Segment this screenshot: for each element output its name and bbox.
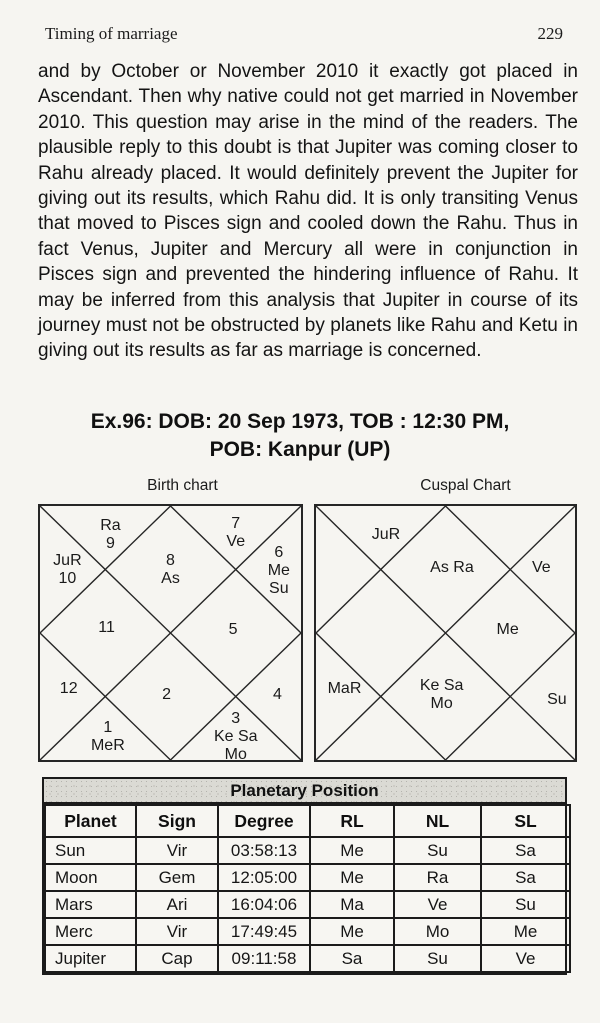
table-cell: Vir bbox=[136, 918, 218, 945]
table-cell: Vir bbox=[136, 837, 218, 864]
birth-house-2: 2 bbox=[162, 686, 171, 704]
body-paragraph: and by October or November 2010 it exact… bbox=[38, 59, 578, 364]
table-cell: 12:05:00 bbox=[218, 864, 310, 891]
example-heading-line2: POB: Kanpur (UP) bbox=[0, 436, 600, 464]
birth-house-10: JuR 10 bbox=[53, 552, 81, 588]
table-row: Sun Vir 03:58:13 Me Su Sa bbox=[45, 837, 570, 864]
table-cell: Cap bbox=[136, 945, 218, 972]
table-row: Merc Vir 17:49:45 Me Mo Me bbox=[45, 918, 570, 945]
planetary-table: Planet Sign Degree RL NL SL Sun Vir 03:5… bbox=[44, 804, 571, 973]
table-cell: Me bbox=[310, 918, 394, 945]
running-title: Timing of marriage bbox=[45, 24, 178, 44]
table-cell: Merc bbox=[45, 918, 136, 945]
birth-house-7: 7 Ve bbox=[226, 515, 245, 551]
table-cell: Sa bbox=[481, 864, 570, 891]
birth-house-1: 1 MeR bbox=[91, 719, 125, 755]
table-cell: Ve bbox=[394, 891, 481, 918]
column-header-nl: NL bbox=[394, 805, 481, 837]
birth-house-3: 3 Ke Sa Mo bbox=[203, 710, 268, 764]
table-cell: Su bbox=[394, 945, 481, 972]
table-cell: Sun bbox=[45, 837, 136, 864]
table-cell: Ra bbox=[394, 864, 481, 891]
table-cell: Su bbox=[394, 837, 481, 864]
table-row: Jupiter Cap 09:11:58 Sa Su Ve bbox=[45, 945, 570, 972]
table-cell: Ma bbox=[310, 891, 394, 918]
cuspal-house-sun: Su bbox=[547, 691, 567, 709]
column-header-degree: Degree bbox=[218, 805, 310, 837]
table-cell: Me bbox=[481, 918, 570, 945]
birth-house-11: 11 bbox=[98, 619, 115, 637]
running-header: Timing of marriage 229 bbox=[45, 24, 563, 46]
birth-house-8-asc: 8 As bbox=[161, 552, 180, 588]
birth-chart-title: Birth chart bbox=[50, 477, 315, 495]
table-cell: Jupiter bbox=[45, 945, 136, 972]
table-cell: Me bbox=[310, 864, 394, 891]
column-header-sign: Sign bbox=[136, 805, 218, 837]
column-header-planet: Planet bbox=[45, 805, 136, 837]
birth-chart: Ra 9 JuR 10 8 As 7 Ve 6 Me Su 11 5 12 1 … bbox=[38, 504, 303, 762]
birth-house-12: 12 bbox=[60, 680, 78, 698]
birth-house-4: 4 bbox=[273, 686, 282, 704]
table-cell: 03:58:13 bbox=[218, 837, 310, 864]
table-cell: Mo bbox=[394, 918, 481, 945]
table-cell: Moon bbox=[45, 864, 136, 891]
birth-house-9: Ra 9 bbox=[100, 517, 120, 553]
table-cell: Su bbox=[481, 891, 570, 918]
table-cell: Me bbox=[310, 837, 394, 864]
table-row: Mars Ari 16:04:06 Ma Ve Su bbox=[45, 891, 570, 918]
table-cell: Ari bbox=[136, 891, 218, 918]
birth-house-6: 6 Me Su bbox=[268, 544, 290, 598]
table-cell: 17:49:45 bbox=[218, 918, 310, 945]
table-cell: Sa bbox=[481, 837, 570, 864]
table-cell: Mars bbox=[45, 891, 136, 918]
cuspal-chart-title: Cuspal Chart bbox=[334, 477, 597, 495]
table-cell: Gem bbox=[136, 864, 218, 891]
column-header-sl: SL bbox=[481, 805, 570, 837]
cuspal-chart: JuR As Ra Ve Me MaR Ke Sa Mo Su bbox=[314, 504, 577, 762]
table-caption: Planetary Position bbox=[44, 779, 565, 804]
cuspal-house-asc-rahu: As Ra bbox=[430, 559, 474, 577]
table-header-row: Planet Sign Degree RL NL SL bbox=[45, 805, 570, 837]
table-cell: 09:11:58 bbox=[218, 945, 310, 972]
cuspal-house-mercury: Me bbox=[497, 621, 519, 639]
table-cell: 16:04:06 bbox=[218, 891, 310, 918]
planetary-position-table: Planetary Position Planet Sign Degree RL… bbox=[42, 777, 567, 975]
example-heading: Ex.96: DOB: 20 Sep 1973, TOB : 12:30 PM,… bbox=[0, 408, 600, 464]
cuspal-house-jupiter: JuR bbox=[372, 526, 400, 544]
column-header-rl: RL bbox=[310, 805, 394, 837]
book-page: Timing of marriage 229 and by October or… bbox=[0, 0, 600, 1023]
cuspal-chart-grid-lines bbox=[316, 506, 575, 760]
cuspal-house-ketu-saturn-moon: Ke Sa Mo bbox=[420, 677, 464, 713]
table-cell: Ve bbox=[481, 945, 570, 972]
example-heading-line1: Ex.96: DOB: 20 Sep 1973, TOB : 12:30 PM, bbox=[0, 408, 600, 436]
cuspal-house-mars: MaR bbox=[328, 680, 362, 698]
page-number: 229 bbox=[538, 24, 564, 44]
table-row: Moon Gem 12:05:00 Me Ra Sa bbox=[45, 864, 570, 891]
table-cell: Sa bbox=[310, 945, 394, 972]
birth-house-5: 5 bbox=[229, 621, 238, 639]
cuspal-house-venus: Ve bbox=[532, 559, 551, 577]
